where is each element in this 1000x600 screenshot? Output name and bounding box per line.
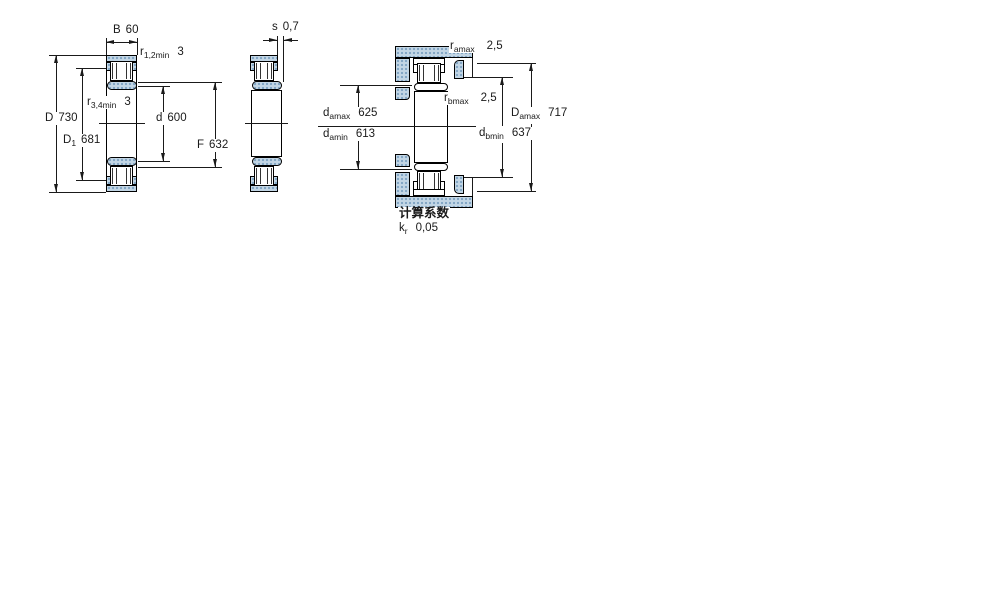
fig2-dim-s-ext-left [277,36,278,55]
fig3-dim-Da-ext-top [477,63,536,64]
fig2-dim-s-ext-right [283,36,284,82]
fig1-dim-d-arrow-down [161,153,165,161]
fig1-dim-D1-line-upper [82,68,83,134]
fig1-outer-ring-lip-right-bottom [132,176,137,185]
fig1-centerline [99,123,145,124]
fig3-shaft-face-top [472,58,473,77]
fig1-outer-ring-lip-left-bottom [106,176,111,185]
fig1-dim-D1-arrow-up [80,68,84,76]
fig3-outer-ring-bottom [413,189,445,196]
fig2-inner-ring-strip-top [252,81,282,90]
fig1-dim-d-ext-top [138,86,170,87]
fig1-dim-F-arrow-down [213,159,217,167]
fig1-dim-D-arrow-down [54,184,58,192]
fig1-dim-d-arrow-up [161,86,165,94]
bearing-dimension-drawing: B60 r1,2min3 r3,4min3 D730 D1681 d600 F6… [0,0,1000,600]
fig3-housing-shoulder-top [395,58,410,82]
fig1-dim-D-arrow-up [54,55,58,63]
fig1-roller-bottom [110,166,133,186]
fig1-outer-ring-bottom [106,185,137,192]
fig1-dim-D-line-lower [56,125,57,192]
fig3-dim-da-tick-top [340,85,412,86]
fig2-outer-ring-lip-right-bottom [273,176,278,185]
fig1-dim-d-ext-bottom [138,161,170,162]
fig3-centerline [318,126,476,127]
fig1-dim-F-ext-top [138,82,222,83]
fig3-label-rbmax: rbmax2,5 [443,92,498,105]
fig3-shaft-shoulder-bottom [454,175,464,194]
fig3-dim-Da-arrow-up [529,63,533,71]
fig2-inner-ring-strip-bottom [252,157,282,166]
fig3-dim-db-arrow-up [500,77,504,85]
fig1-label-D: D730 [44,112,79,125]
fig2-outer-ring-lip-left-bottom [250,176,255,185]
fig3-label-dbmin: dbmin637 [478,127,532,140]
fig1-label-r12min: r1,2min3 [139,46,185,59]
fig1-dim-B-arrow-left [106,40,114,44]
fig3-roller-top [417,63,441,83]
fig2-label-s: s0,7 [271,21,300,34]
fig3-dim-da-arrow-up [356,85,360,93]
fig3-roller-bottom [417,171,441,191]
fig1-dim-F-arrow-up [213,82,217,90]
fig1-dim-D1-arrow-down [80,172,84,180]
fig1-dim-D-line-upper [56,55,57,112]
fig1-inner-ring-strip-top [107,81,137,90]
fig1-dim-D1-ext-bottom [76,180,106,181]
fig1-dim-F-line-upper [215,82,216,139]
fig3-label-damax: damax625 [322,107,378,120]
fig3-shaft-line-top [464,77,513,78]
fig3-dim-db-arrow-down [500,169,504,177]
fig3-label-Damax: Damax717 [510,107,568,120]
fig1-dim-B-arrow-right [129,40,137,44]
fig3-dim-da-arrow-down [356,161,360,169]
fig1-label-d: d600 [155,112,188,125]
fig3-shaft-spacer-bottom [395,154,410,167]
fig3-inner-ring-strip-bottom [414,163,448,171]
fig2-roller-top [254,61,274,81]
fig2-centerline [245,123,288,124]
fig3-shaft-shoulder-top [454,60,464,79]
fig3-dim-Da-ext-bottom [477,191,536,192]
fig1-dim-F-ext-bottom [138,167,222,168]
fig2-dim-s-arrow-right [269,38,277,42]
fig3-dim-da-tick-bottom [340,169,412,170]
fig1-label-F: F632 [196,139,229,152]
fig1-inner-ring-strip-bottom [107,157,137,166]
fig3-housing-shoulder-bottom [395,172,410,196]
fig2-outer-ring-bottom [250,185,278,192]
fig1-label-r34min: r3,4min3 [86,96,132,109]
fig3-inner-ring-strip-top [414,83,448,91]
fig3-label-ramax: ramax2,5 [449,40,504,53]
fig1-roller-top [110,61,133,81]
fig2-roller-bottom [254,166,274,186]
fig3-label-damin: damin613 [322,128,376,141]
calculation-factors-title: 计算系数 [398,207,450,220]
fig3-shaft-face-bottom [472,177,473,196]
kr-factor: kr0,05 [398,222,439,235]
fig1-dim-D-ext-bottom [49,192,106,193]
fig1-label-B: B60 [112,24,139,37]
fig1-label-D1: D1681 [62,134,101,147]
fig3-dim-Da-arrow-down [529,183,533,191]
fig1-dim-B-ext-right [137,38,138,55]
fig2-dim-s-arrow-left [284,38,292,42]
fig3-shaft-spacer-top [395,87,410,100]
